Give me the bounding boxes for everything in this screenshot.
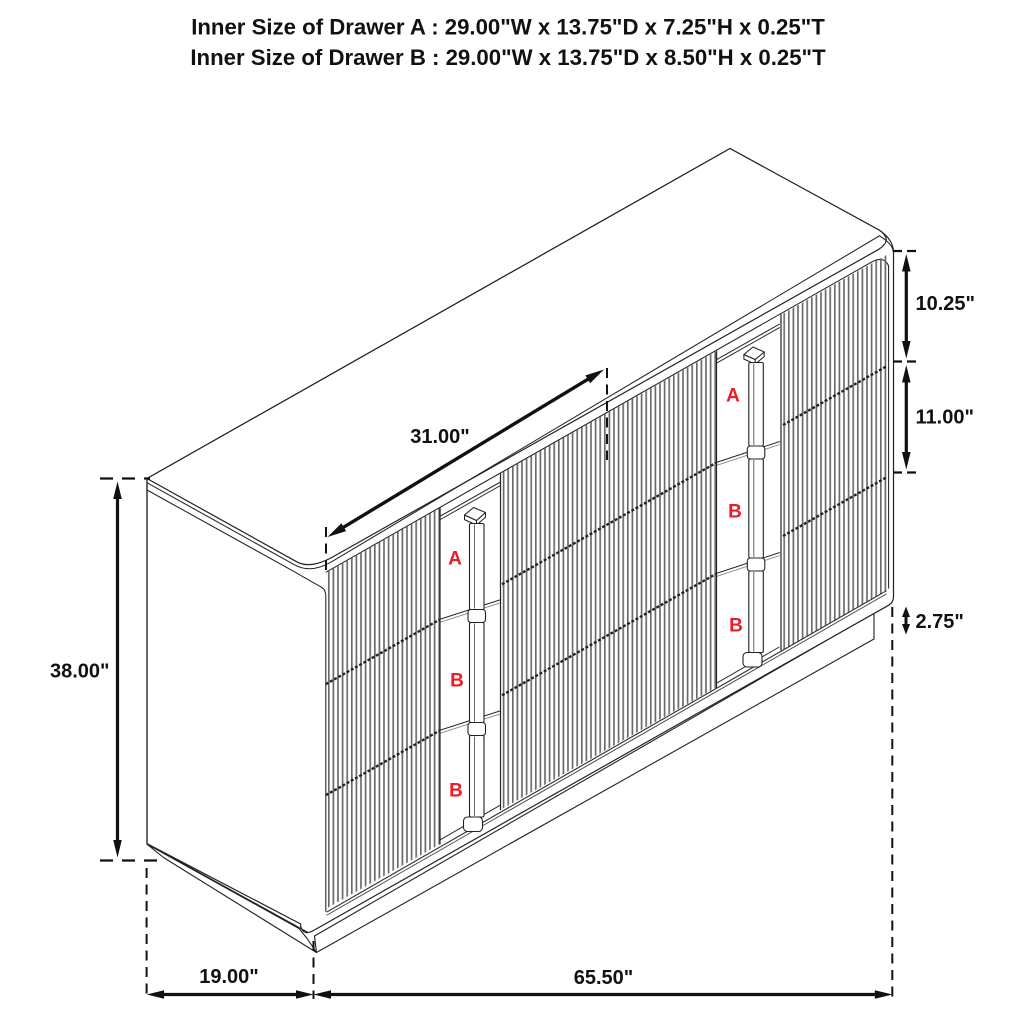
svg-text:Inner Size of Drawer A : 29.00: Inner Size of Drawer A : 29.00"W x 13.75… [191,15,825,40]
svg-text:31.00": 31.00" [410,426,470,448]
svg-text:10.25": 10.25" [916,293,976,315]
svg-text:A: A [448,549,462,570]
svg-text:A: A [726,386,740,407]
svg-text:B: B [728,502,742,523]
svg-text:38.00": 38.00" [50,661,110,683]
svg-text:2.75": 2.75" [916,611,964,633]
svg-text:B: B [449,781,463,802]
svg-text:19.00": 19.00" [199,966,259,988]
svg-text:65.50": 65.50" [574,967,634,989]
svg-text:Inner Size of Drawer B : 29.00: Inner Size of Drawer B : 29.00"W x 13.75… [190,45,826,70]
svg-text:11.00": 11.00" [916,407,974,429]
svg-text:B: B [729,616,743,637]
svg-text:B: B [450,671,464,692]
